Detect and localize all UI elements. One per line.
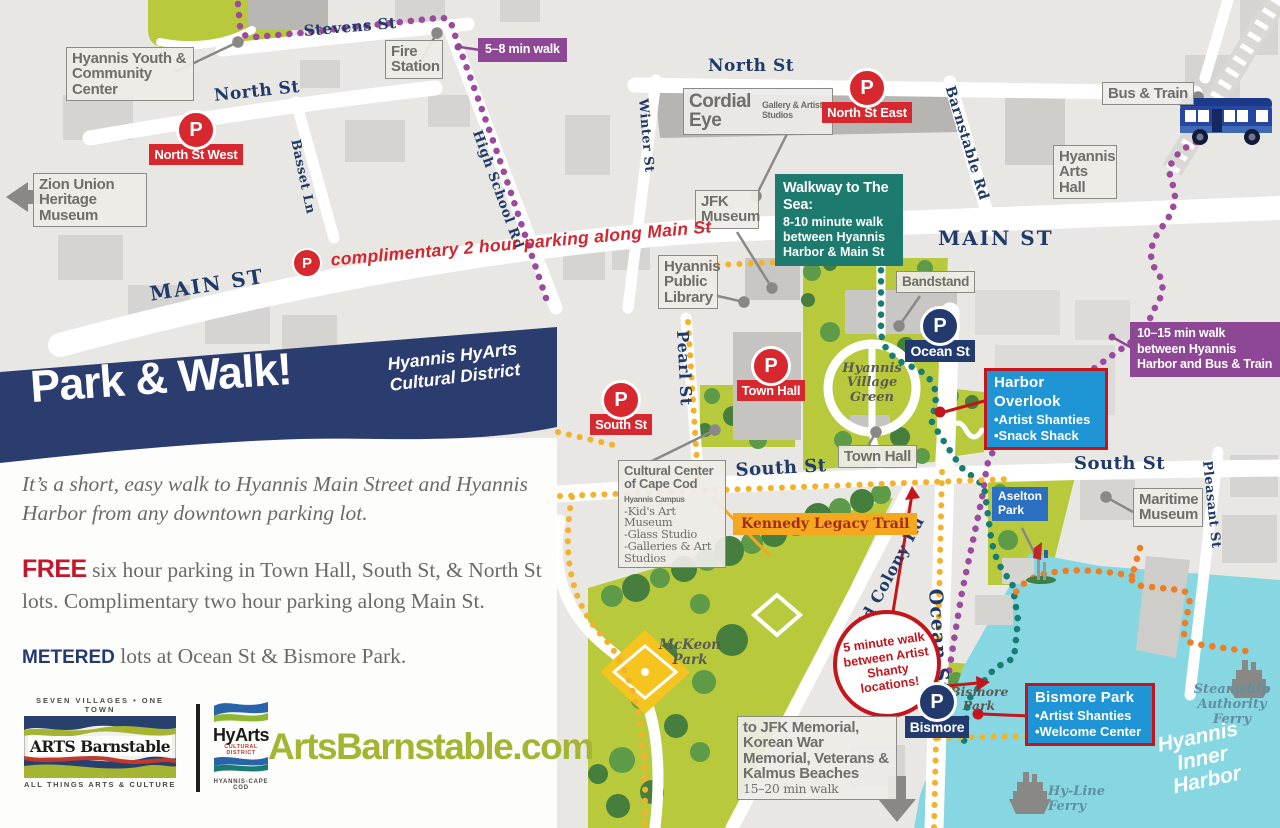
label-mckeon: McKeon Park [648,638,732,668]
parking-bismore: P Bismore [903,682,971,738]
walkway-title: Walkway to The Sea: [783,180,895,215]
callout-aselton: Aselton Park [992,487,1048,521]
cc-title: Cultural Center of Cape Cod [624,463,713,491]
label-cultural-center: Cultural Center of Cape Cod Hyannis Camp… [618,460,726,568]
hyarts-logo-name: HyArts [212,727,270,744]
callout-bismore-park: Bismore Park •Artist Shanties •Welcome C… [1025,683,1155,746]
label-bus-train: Bus & Train [1102,82,1194,105]
hyarts-logo-sub: HYANNIS-CAPE COD [212,779,270,791]
hyarts-wave-bottom [214,756,268,772]
arts-logo-top: SEVEN VILLAGES • ONE TOWN [22,696,178,714]
parking-north-st-east: P North St East [823,68,911,123]
parking-icon: P [920,306,960,346]
parking-icon-main-st: P [292,248,322,278]
metered-label: METERED [22,647,115,668]
aselton-sculpture-icon [1024,540,1058,589]
callout-harbor-overlook: Harbor Overlook •Artist Shanties •Snack … [984,368,1108,450]
hyline-ferry-icon [1008,770,1052,825]
label-library: Hyannis Public Library [658,255,718,309]
panel-metered-paragraph: METERED lots at Ocean St & Bismore Park. [22,644,542,669]
logo-divider [196,704,200,792]
harbor-overlook-title: Harbor Overlook [994,374,1098,412]
label-hyline-ferry: Hy-Line Ferry [1048,785,1110,815]
label-town-hall: Town Hall [838,445,917,468]
label-cordial-eye: Cordial Eye Gallery & Artist Studios [683,88,833,135]
metered-text: lots at Ocean St & Bismore Park. [115,644,406,668]
street-north-top: North St [708,56,794,76]
free-label: FREE [22,555,87,583]
label-hyannis-youth: Hyannis Youth & Community Center [66,47,194,101]
parking-north-st-west: P North St West [150,110,242,165]
callout-5-8-walk: 5–8 min walk [478,38,567,62]
parking-icon: P [917,682,957,722]
street-pearl: Pearl St [673,330,696,406]
parking-icon: P [751,346,791,386]
bismore-park-item2: •Welcome Center [1035,724,1145,740]
parking-icon: P [847,68,887,108]
label-zion: Zion Union Heritage Museum [33,173,147,227]
website-text: ArtsBarnstable.com [268,726,593,768]
panel-free-paragraph: FREE six hour parking in Town Hall, Sout… [22,552,542,616]
parking-icon: P [601,380,641,420]
label-village-green: Hyannis Village Green [836,362,908,405]
label-jfk-memorial: to JFK Memorial, Korean War Memorial, Ve… [737,716,897,800]
street-south-right: South St [1074,453,1165,474]
cc-campus: Hyannis Campus [624,495,685,504]
panel-intro: It’s a short, easy walk to Hyannis Main … [22,470,550,528]
park-and-walk-map: { "colors":{"navy":"#223a6e","red":"#d72… [0,0,1280,828]
parking-icon: P [176,110,216,150]
label-maritime: Maritime Museum [1133,488,1203,527]
arts-logo-bottom: ALL THINGS ARTS & CULTURE [22,780,178,789]
parking-ocean-st: P Ocean St [906,306,974,362]
parking-town-hall: P Town Hall [737,346,805,401]
street-main-right: MAIN ST [938,226,1054,250]
hyarts-logo-district: CULTURAL DISTRICT [212,744,270,756]
jfk-memorial-sub: 15–20 min walk [743,783,891,796]
arts-barnstable-logo: SEVEN VILLAGES • ONE TOWN ARTS Barnstabl… [22,696,178,789]
callout-kennedy-trail: Kennedy Legacy Trail [733,513,917,535]
callout-10-15-walk: 10–15 min walk between Hyannis Harbor an… [1130,322,1280,377]
callout-walkway: Walkway to The Sea: 8-10 minute walk bet… [775,174,903,266]
label-fire-station: Fire Station [385,40,443,79]
free-text: six hour parking in Town Hall, South St,… [22,558,542,613]
label-bandstand: Bandstand [896,271,975,293]
cordial-eye-sub: Gallery & Artist Studios [762,101,827,121]
cc-item-1: -Kid's Art Museum [624,506,720,529]
walkway-body: 8-10 minute walk between Hyannis Harbor … [783,215,895,260]
arts-logo-art: ARTS Barnstable [24,716,176,778]
bismore-park-title: Bismore Park [1035,689,1145,708]
hyarts-logo: HyArts CULTURAL DISTRICT HYANNIS-CAPE CO… [212,700,270,791]
jfk-memorial-text: to JFK Memorial, Korean War Memorial, Ve… [743,720,891,781]
hyarts-wave-top [214,700,268,722]
parking-south-st: P South St [589,380,653,435]
harbor-overlook-item1: •Artist Shanties [994,412,1098,428]
bismore-park-item1: •Artist Shanties [1035,708,1145,724]
arts-logo-name: ARTS Barnstable [24,737,176,756]
label-arts-hall: Hyannis Arts Hall [1053,145,1117,199]
harbor-overlook-item2: •Snack Shack [994,428,1098,444]
cordial-eye-name: Cordial Eye [689,92,758,131]
cc-item-3: -Galleries & Art Studios [624,541,720,564]
